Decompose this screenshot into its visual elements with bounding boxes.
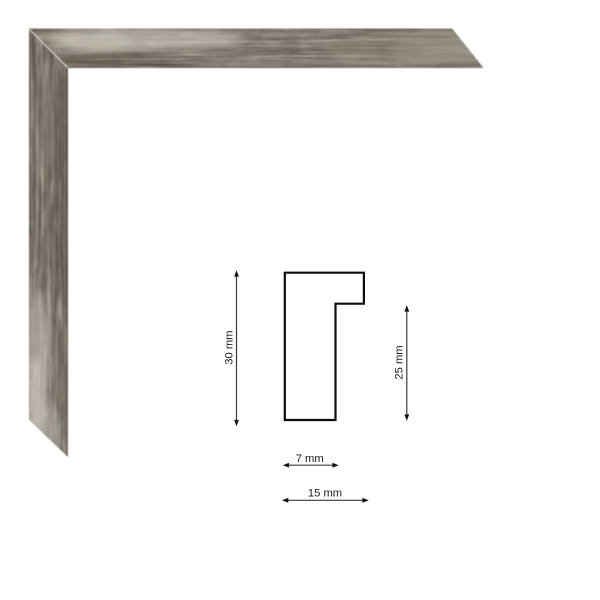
svg-text:30 mm: 30 mm [224, 330, 236, 364]
svg-text:25 mm: 25 mm [393, 345, 405, 379]
svg-text:7 mm: 7 mm [296, 453, 324, 465]
svg-text:15 mm: 15 mm [308, 488, 342, 500]
